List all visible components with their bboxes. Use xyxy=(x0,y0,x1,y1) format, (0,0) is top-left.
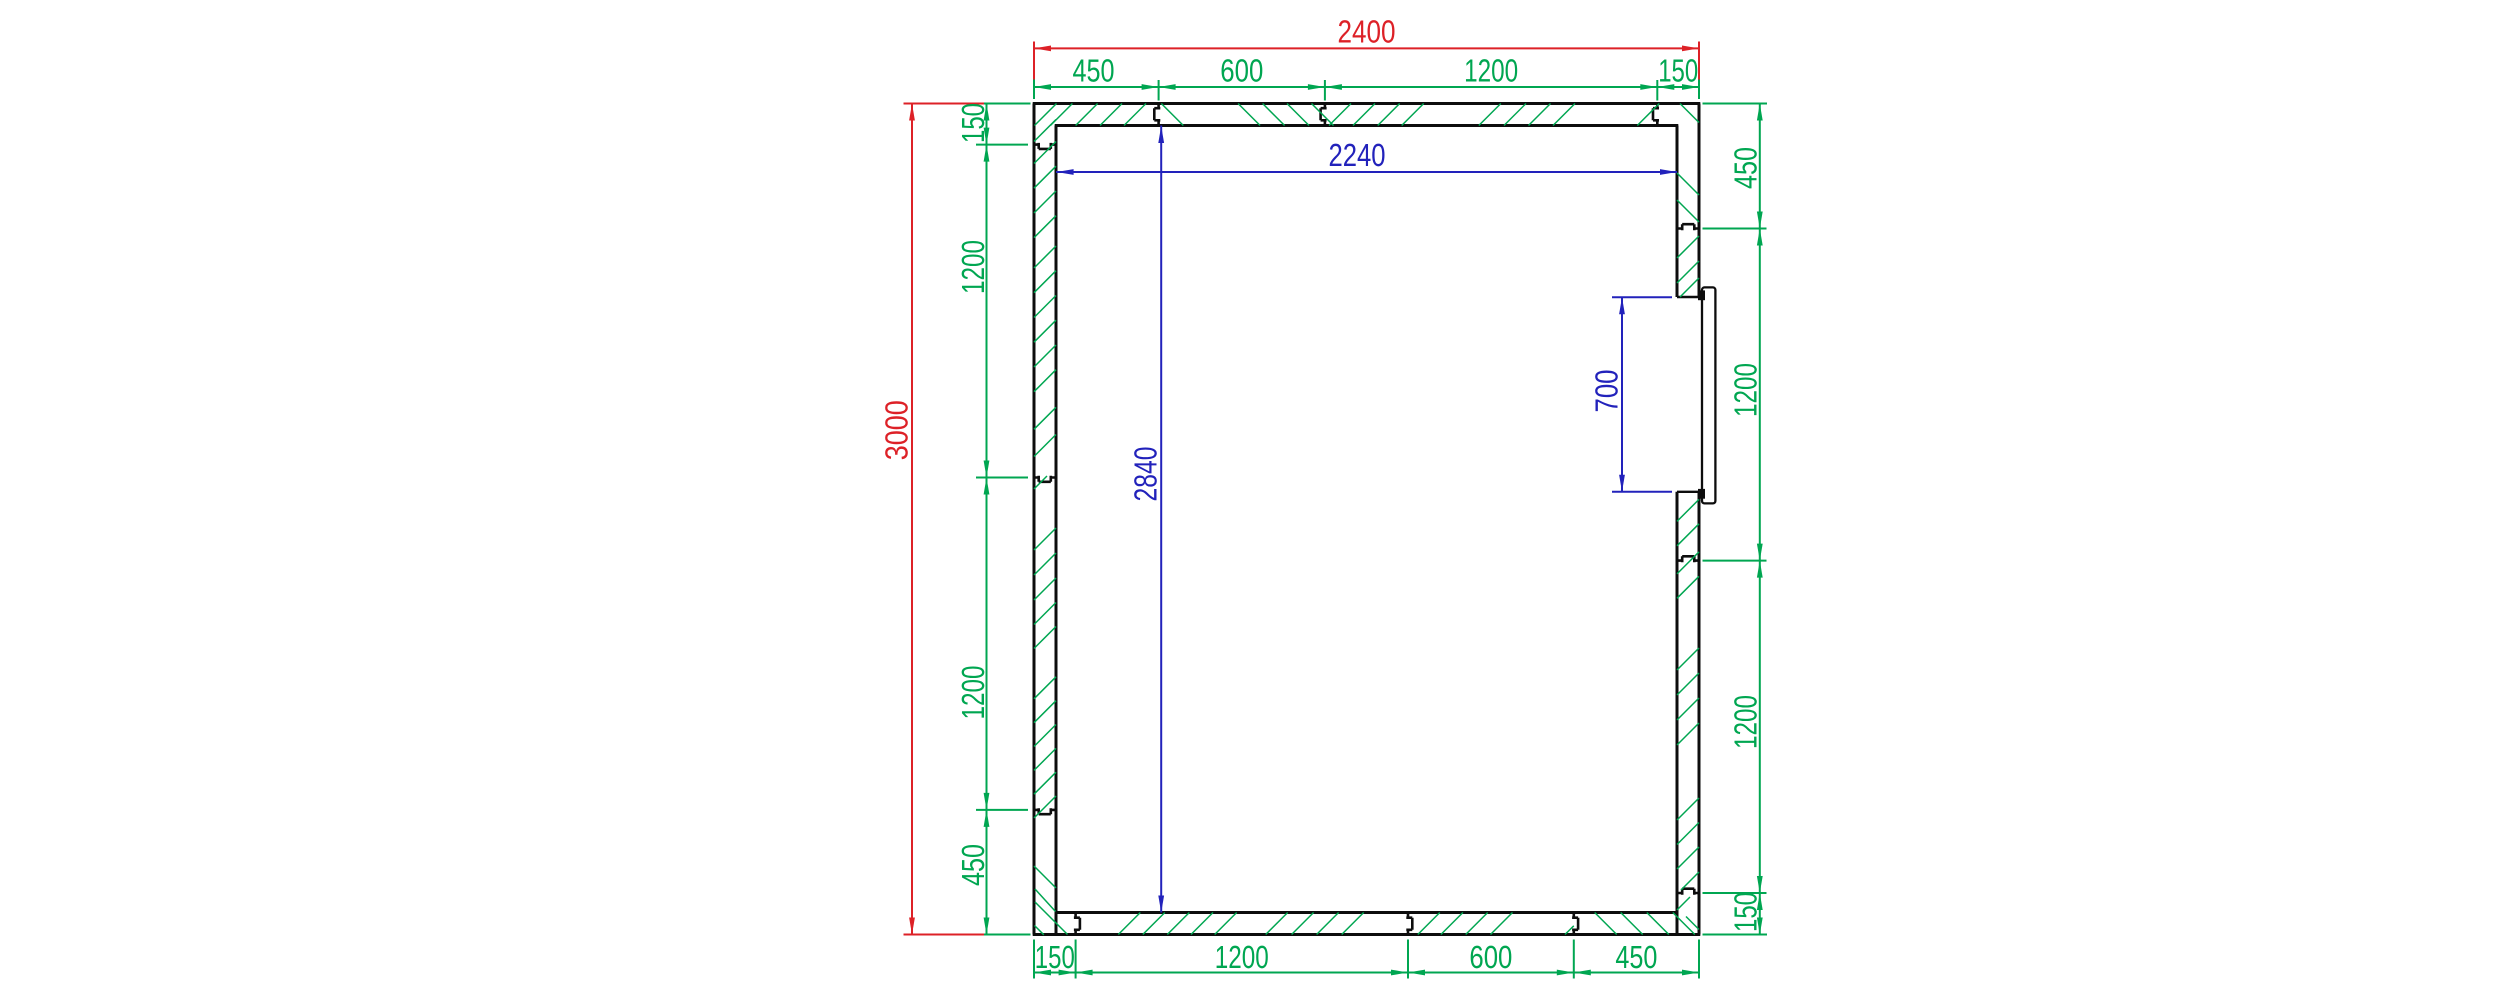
svg-text:2840: 2840 xyxy=(1128,447,1164,502)
svg-text:150: 150 xyxy=(1728,892,1764,932)
svg-text:450: 450 xyxy=(955,844,991,886)
svg-text:450: 450 xyxy=(1615,939,1657,975)
svg-text:700: 700 xyxy=(1589,370,1625,413)
svg-text:1200: 1200 xyxy=(1728,695,1764,749)
svg-text:450: 450 xyxy=(1728,147,1764,189)
svg-text:2400: 2400 xyxy=(1338,14,1396,50)
svg-text:150: 150 xyxy=(1658,52,1698,88)
svg-text:450: 450 xyxy=(1073,52,1115,88)
svg-text:3000: 3000 xyxy=(879,400,915,460)
svg-text:600: 600 xyxy=(1220,52,1263,88)
svg-text:1200: 1200 xyxy=(955,666,991,720)
svg-text:150: 150 xyxy=(1035,939,1075,975)
svg-text:1200: 1200 xyxy=(1728,363,1764,417)
svg-text:1200: 1200 xyxy=(1464,52,1518,88)
svg-text:150: 150 xyxy=(955,103,991,143)
svg-text:2240: 2240 xyxy=(1329,137,1386,173)
svg-text:600: 600 xyxy=(1469,939,1512,975)
svg-text:1200: 1200 xyxy=(955,240,991,294)
svg-text:1200: 1200 xyxy=(1215,939,1269,975)
